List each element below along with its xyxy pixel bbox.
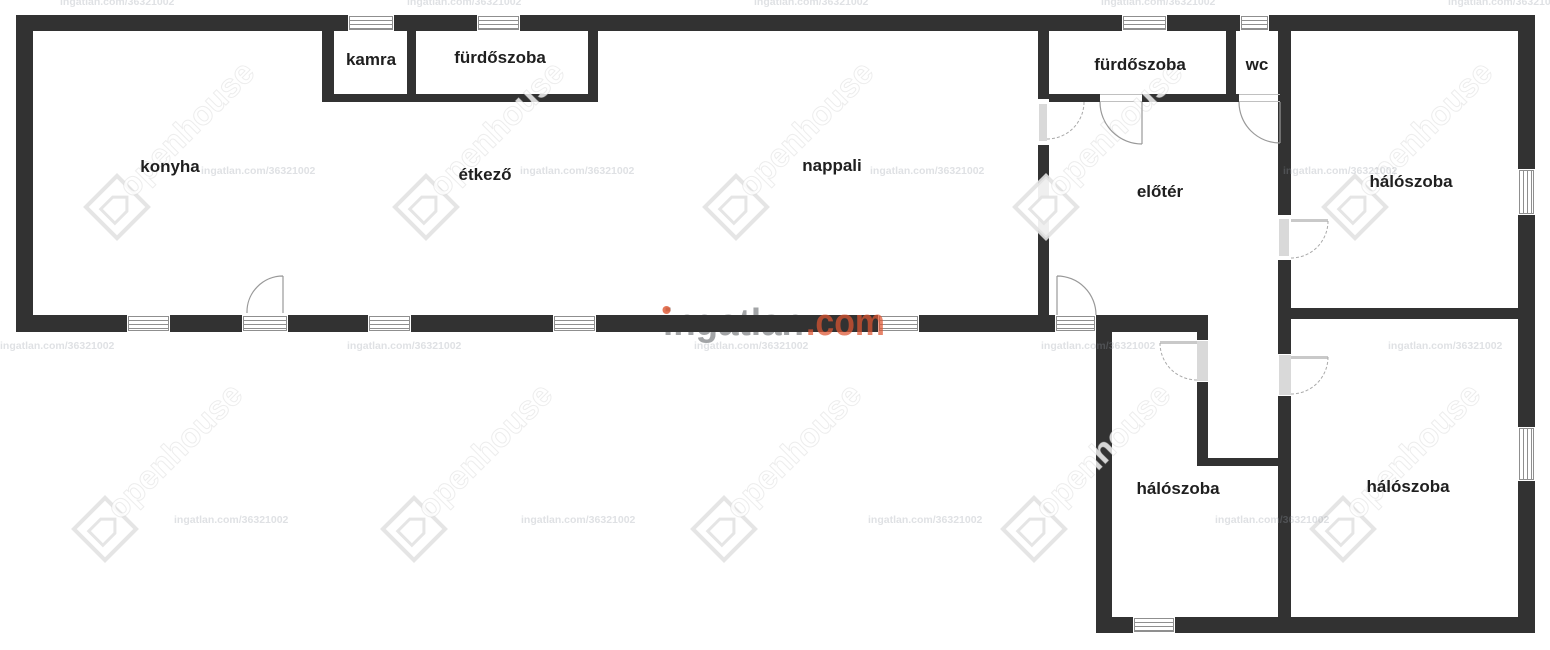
svg-text:openhouse: openhouse [111, 53, 262, 204]
svg-text:ingatlan.com/36321002: ingatlan.com/36321002 [0, 340, 115, 352]
svg-text:ingatlan.com/36321002: ingatlan.com/36321002 [1388, 340, 1503, 352]
svg-text:ingatlan.com/36321002: ingatlan.com/36321002 [754, 0, 869, 8]
svg-text:ingatlan.com/36321002: ingatlan.com/36321002 [1101, 0, 1216, 8]
svg-text:ingatlan.com/36321002: ingatlan.com/36321002 [870, 165, 985, 177]
svg-text:ingatlan.com/36321002: ingatlan.com/36321002 [201, 165, 316, 177]
svg-text:openhouse: openhouse [99, 375, 250, 526]
svg-text:ingatlan.com/36321002: ingatlan.com/36321002 [347, 340, 462, 352]
svg-text:ingatlan.com/36321002: ingatlan.com/36321002 [407, 0, 522, 8]
svg-text:openhouse: openhouse [409, 375, 560, 526]
svg-text:.com: .com [806, 302, 885, 344]
svg-text:ingatlan.com/36321002: ingatlan.com/36321002 [1215, 514, 1330, 526]
svg-text:ingatlan.com/36321002: ingatlan.com/36321002 [868, 514, 983, 526]
svg-text:openhouse: openhouse [1027, 375, 1178, 526]
svg-text:ingatlan.com/36321002: ingatlan.com/36321002 [174, 514, 289, 526]
svg-text:openhouse: openhouse [730, 53, 881, 204]
svg-text:ingatlan.com/36321002: ingatlan.com/36321002 [60, 0, 175, 8]
svg-text:ingatlan.com/36321002: ingatlan.com/36321002 [1448, 0, 1550, 8]
svg-text:ingatlan.com/36321002: ingatlan.com/36321002 [1041, 340, 1156, 352]
svg-text:ingatlan.com/36321002: ingatlan.com/36321002 [694, 340, 809, 352]
svg-text:ingatlan.com/36321002: ingatlan.com/36321002 [521, 514, 636, 526]
svg-text:openhouse: openhouse [718, 375, 869, 526]
svg-text:ingatlan.com/36321002: ingatlan.com/36321002 [520, 165, 635, 177]
svg-text:openhouse: openhouse [1337, 375, 1488, 526]
